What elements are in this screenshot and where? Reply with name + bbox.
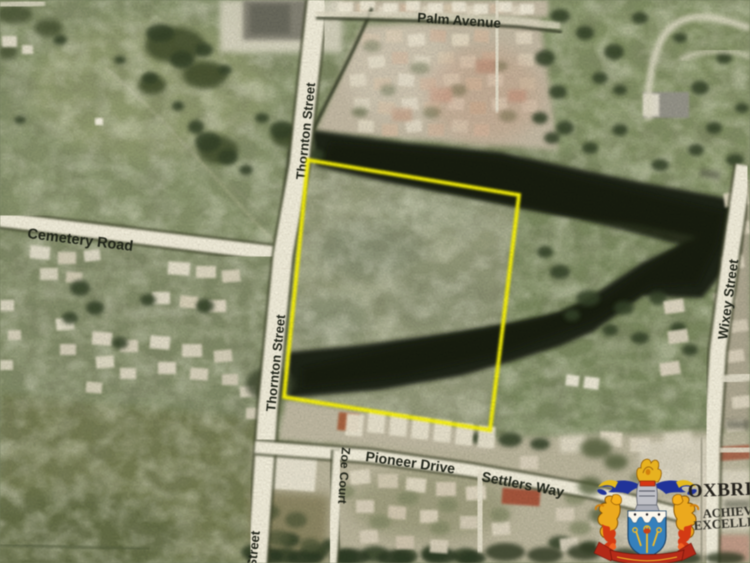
svg-text:OXBRIDGE: OXBRIDGE [687, 477, 750, 502]
